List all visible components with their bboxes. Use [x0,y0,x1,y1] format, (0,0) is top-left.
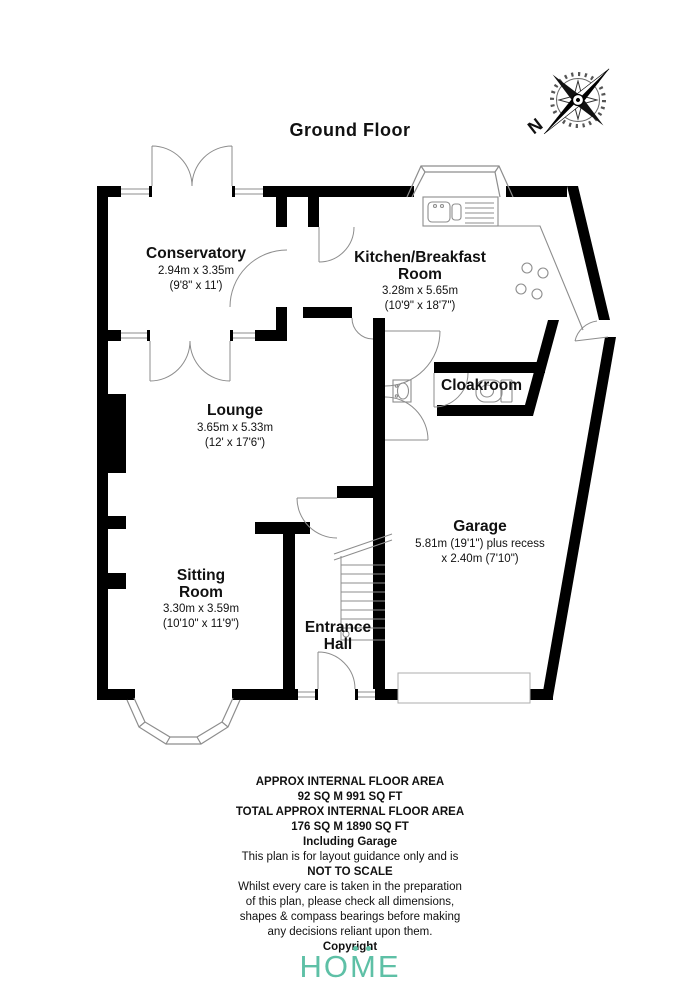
room-label-garage: Garage 5.81m (19'1") plus recess x 2.40m… [373,519,587,566]
room-dim-metric: 3.65m x 5.33m [150,421,320,435]
room-dim-imperial: (10'9" x 18'7") [335,299,505,313]
room-name: Lounge [150,403,320,420]
footer-line: 176 SQ M 1890 SQ FT [0,820,700,835]
room-name: Garage [373,519,587,536]
room-name: Entrance Hall [296,620,381,653]
footer-line: 92 SQ M 991 SQ FT [0,790,700,805]
garage-door [398,673,530,703]
room-label-sitting-room: Sitting Room 3.30m x 3.59m (10'10" x 11'… [116,568,286,632]
footer-line: Including Garage [0,835,700,850]
room-dim-imperial: x 2.40m (7'10") [373,552,587,566]
room-dim-imperial: (12' x 17'6") [150,436,320,450]
logo-dot [366,946,371,951]
room-label-lounge: Lounge 3.65m x 5.33m (12' x 17'6") [150,403,320,450]
room-label-cloakroom: Cloakroom [424,378,539,395]
footer-disclaimer: APPROX INTERNAL FLOOR AREA 92 SQ M 991 S… [0,775,700,955]
room-name: Conservatory [111,246,281,263]
room-dim-metric: 5.81m (19'1") plus recess [373,537,587,551]
room-dim-metric: 2.94m x 3.35m [111,264,281,278]
logo-dot [353,946,358,951]
page-title: Ground Floor [0,120,700,141]
room-label-kitchen: Kitchen/Breakfast Room 3.28m x 5.65m (10… [335,250,505,314]
footer-line: This plan is for layout guidance only an… [0,850,700,865]
footer-line: Whilst every care is taken in the prepar… [0,880,700,895]
room-label-conservatory: Conservatory 2.94m x 3.35m (9'8" x 11') [111,246,281,293]
brand-logo: HOME [0,949,700,985]
room-name: Sitting Room [166,568,236,601]
room-name: Cloakroom [424,378,539,395]
room-dim-imperial: (9'8" x 11') [111,279,281,293]
footer-line: of this plan, please check all dimension… [0,895,700,910]
room-label-entrance-hall: Entrance Hall [288,620,388,653]
footer-line: any decisions reliant upon them. [0,925,700,940]
footer-line: shapes & compass bearings before making [0,910,700,925]
footer-line: APPROX INTERNAL FLOOR AREA [0,775,700,790]
floorplan-page: Ground Floor N Conservatory 2.94m x 3.35… [0,0,700,990]
footer-line: TOTAL APPROX INTERNAL FLOOR AREA [0,805,700,820]
room-name: Kitchen/Breakfast Room [345,250,495,283]
room-dim-metric: 3.30m x 3.59m [116,602,286,616]
footer-line: NOT TO SCALE [0,865,700,880]
brand-logo-text: HOME [300,949,401,984]
room-dim-imperial: (10'10" x 11'9") [116,617,286,631]
room-dim-metric: 3.28m x 5.65m [335,284,505,298]
compass-rose-icon [519,43,635,159]
